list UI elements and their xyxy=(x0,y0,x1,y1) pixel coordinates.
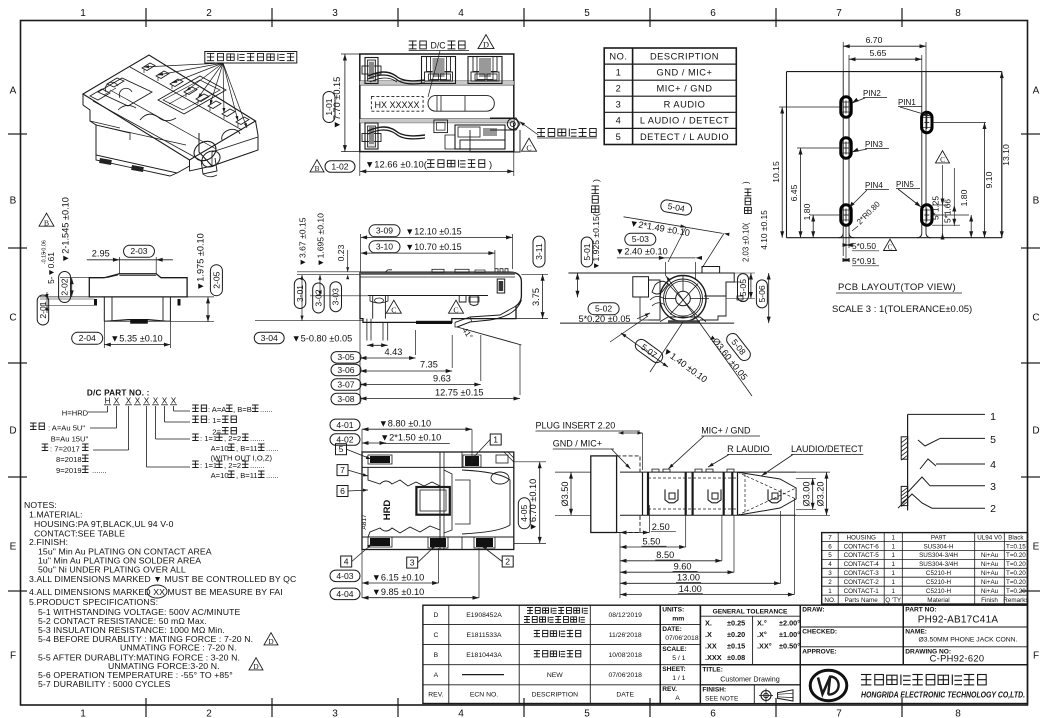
svg-text:6.70: 6.70 xyxy=(866,35,883,45)
svg-text:2: 2 xyxy=(206,8,212,19)
svg-text:1: 1 xyxy=(891,543,895,550)
svg-text:5*0.91: 5*0.91 xyxy=(852,256,876,266)
svg-text:.......: ....... xyxy=(250,461,265,470)
svg-text:T=0.20: T=0.20 xyxy=(1006,552,1026,559)
svg-text:9=2019: 9=2019 xyxy=(56,466,82,475)
svg-text:7: 7 xyxy=(828,534,832,541)
svg-text:11/26'2018: 11/26'2018 xyxy=(609,632,642,639)
svg-text:1: 1 xyxy=(891,534,895,541)
svg-text:, B=11: , B=11 xyxy=(236,444,258,453)
svg-text:2-04: 2-04 xyxy=(79,333,96,343)
svg-text:PIN3: PIN3 xyxy=(865,140,883,149)
svg-text:1: 1 xyxy=(990,411,996,423)
svg-text:▼5.35 ±0.10: ▼5.35 ±0.10 xyxy=(110,334,162,344)
svg-text:Black: Black xyxy=(1008,534,1024,541)
svg-text:5-03: 5-03 xyxy=(632,234,649,244)
svg-text:Parts Name: Parts Name xyxy=(845,597,879,604)
svg-text:NEW: NEW xyxy=(547,672,563,679)
svg-text:Ø3.20: Ø3.20 xyxy=(816,481,826,506)
svg-text:C5210-H: C5210-H xyxy=(926,579,952,586)
svg-text:2.95: 2.95 xyxy=(92,249,110,259)
svg-text:Ø3.00: Ø3.00 xyxy=(802,481,812,506)
svg-text:.X°: .X° xyxy=(757,630,767,639)
svg-text:Material: Material xyxy=(927,597,949,604)
svg-text:PIN2: PIN2 xyxy=(863,89,881,98)
svg-text:3.75: 3.75 xyxy=(531,288,541,306)
svg-text:NOTES:: NOTES: xyxy=(24,500,57,510)
svg-text:T=0.20: T=0.20 xyxy=(1006,588,1026,595)
svg-text:C: C xyxy=(9,313,16,324)
svg-text:3: 3 xyxy=(332,709,338,718)
svg-text:X: X xyxy=(114,396,120,405)
svg-text:DRAW:: DRAW: xyxy=(802,607,824,614)
svg-text:3: 3 xyxy=(332,8,338,19)
svg-text:4-01: 4-01 xyxy=(336,420,353,430)
svg-text:5: 5 xyxy=(990,434,996,446)
svg-text:X.: X. xyxy=(705,619,712,628)
svg-text:6: 6 xyxy=(828,543,832,550)
svg-text:X: X xyxy=(126,396,132,405)
svg-text:SUS304-3/4H: SUS304-3/4H xyxy=(919,561,958,568)
svg-text:5.50: 5.50 xyxy=(643,536,661,546)
svg-text:CHECKED:: CHECKED: xyxy=(802,629,837,636)
svg-text:08/12'2019: 08/12'2019 xyxy=(608,612,642,619)
svg-text:X: X xyxy=(162,396,168,405)
svg-text:CONTACT-6: CONTACT-6 xyxy=(844,543,880,550)
svg-text:C: C xyxy=(1032,313,1039,324)
svg-text:2: 2 xyxy=(206,709,212,718)
svg-text:3-04: 3-04 xyxy=(261,333,278,343)
svg-text:E: E xyxy=(10,542,17,553)
svg-text:H=HRD: H=HRD xyxy=(62,409,89,418)
svg-text:1.80: 1.80 xyxy=(959,189,969,206)
svg-text:C: C xyxy=(391,305,396,314)
svg-text:Remarks: Remarks xyxy=(1003,597,1028,604)
svg-text:5-02: 5-02 xyxy=(595,304,612,314)
svg-text:4.10 ±0.15: 4.10 ±0.15 xyxy=(759,210,769,250)
svg-text:NAME:: NAME: xyxy=(905,629,927,636)
svg-text:APPROVE:: APPROVE: xyxy=(802,648,836,655)
svg-text:5*0.50: 5*0.50 xyxy=(852,241,876,251)
svg-text:HONGRIDA ELECTRONIC TECHNOLOGY: HONGRIDA ELECTRONIC TECHNOLOGY CO,LTD. xyxy=(861,690,1025,700)
svg-text:Ø3.50: Ø3.50 xyxy=(560,481,570,506)
svg-text:A: A xyxy=(675,695,680,702)
svg-text:8: 8 xyxy=(955,709,961,718)
svg-text:5.65: 5.65 xyxy=(870,48,887,58)
svg-text:10.15: 10.15 xyxy=(771,161,781,183)
svg-text:H: H xyxy=(105,396,111,405)
svg-text:NO.: NO. xyxy=(824,597,835,604)
svg-text:SUS304-H: SUS304-H xyxy=(923,543,954,550)
svg-text:, 2=2: , 2=2 xyxy=(224,434,241,443)
svg-text:D/C: D/C xyxy=(431,41,447,51)
svg-text:1: 1 xyxy=(891,579,895,586)
svg-text:6: 6 xyxy=(710,709,716,718)
svg-text:±0.50°: ±0.50° xyxy=(779,642,800,651)
svg-text:GENERAL TOLERANCE: GENERAL TOLERANCE xyxy=(713,608,788,615)
svg-text:UNMATING FORCE : 7-20 N.: UNMATING FORCE : 7-20 N. xyxy=(120,643,237,653)
svg-text:SCALE 3 : 1(TOLERANCE±0.05): SCALE 3 : 1(TOLERANCE±0.05) xyxy=(832,304,972,315)
svg-text:X: X xyxy=(144,396,150,405)
svg-text:9.63: 9.63 xyxy=(433,374,451,384)
svg-text:GND / MIC+: GND / MIC+ xyxy=(553,439,602,449)
svg-text:5*1.66: 5*1.66 xyxy=(943,199,953,223)
svg-text:2-05: 2-05 xyxy=(211,271,221,288)
svg-text:E1810443A: E1810443A xyxy=(466,652,502,659)
svg-text:13.00: 13.00 xyxy=(677,573,700,583)
svg-text:MIC+ / GND: MIC+ / GND xyxy=(657,84,713,94)
svg-text:GND / MIC+: GND / MIC+ xyxy=(657,67,713,77)
svg-text:NO.: NO. xyxy=(609,51,627,61)
svg-text:UNITS:: UNITS: xyxy=(662,607,684,614)
svg-text:D: D xyxy=(433,612,438,619)
svg-text:▼2-1.545 ±0.10: ▼2-1.545 ±0.10 xyxy=(61,197,71,263)
svg-text:3-03: 3-03 xyxy=(331,288,341,305)
svg-text:▼5-0.80 ±0.05: ▼5-0.80 ±0.05 xyxy=(292,334,353,344)
svg-text:A=10: A=10 xyxy=(211,444,229,453)
svg-text:X: X xyxy=(171,396,177,405)
svg-text:1: 1 xyxy=(616,67,622,77)
svg-text:5*0.20 ±0.05: 5*0.20 ±0.05 xyxy=(579,314,631,324)
svg-text:1: 1 xyxy=(80,709,86,718)
svg-text:, B=B: , B=B xyxy=(233,405,252,414)
svg-text:......: ...... xyxy=(266,444,279,453)
svg-text:1.MATERIAL:: 1.MATERIAL: xyxy=(29,510,83,520)
svg-text:C5210-H: C5210-H xyxy=(926,570,952,577)
svg-text:HX XXXXX: HX XXXXX xyxy=(374,100,419,110)
svg-text:3-08: 3-08 xyxy=(337,394,354,404)
svg-text:Ni+Au: Ni+Au xyxy=(981,552,999,559)
svg-text:3: 3 xyxy=(990,481,996,493)
svg-text:5: 5 xyxy=(584,8,590,19)
svg-text:4: 4 xyxy=(828,561,832,568)
svg-text:5-▼0.61: 5-▼0.61 xyxy=(46,252,56,284)
svg-text:L AUDIO / DETECT: L AUDIO / DETECT xyxy=(640,116,729,126)
svg-text:TITLE:: TITLE: xyxy=(702,667,723,674)
svg-text:D: D xyxy=(9,426,16,437)
svg-text:2.03 ±0.10(: 2.03 ±0.10( xyxy=(742,222,751,262)
svg-text:6.45: 6.45 xyxy=(789,184,799,201)
svg-text:D: D xyxy=(1032,426,1039,437)
svg-text:D: D xyxy=(253,662,258,671)
svg-text:1: 1 xyxy=(891,561,895,568)
svg-text:1: 1 xyxy=(80,8,86,19)
svg-text:T=0.20: T=0.20 xyxy=(1006,579,1026,586)
svg-text:......: ...... xyxy=(260,405,273,414)
svg-text:B: B xyxy=(1033,196,1040,207)
svg-text:FINISH:: FINISH: xyxy=(702,687,726,694)
svg-text:07/06'2018: 07/06'2018 xyxy=(665,635,699,642)
svg-text:▼1.695 ±0.10: ▼1.695 ±0.10 xyxy=(316,213,326,267)
svg-text:A=10: A=10 xyxy=(211,471,229,480)
svg-text:3-06: 3-06 xyxy=(337,365,354,375)
svg-text:5*1.25: 5*1.25 xyxy=(931,196,941,220)
svg-text:3-01: 3-01 xyxy=(295,285,305,302)
svg-text:±2.00°: ±2.00° xyxy=(779,619,800,628)
svg-text:: 1=: : 1= xyxy=(208,416,221,425)
svg-text:CONTACT-1: CONTACT-1 xyxy=(844,588,880,595)
svg-text:C5210-H: C5210-H xyxy=(926,588,952,595)
svg-text:PCB LAYOUT(TOP VIEW): PCB LAYOUT(TOP VIEW) xyxy=(838,282,956,293)
svg-text:4-03: 4-03 xyxy=(336,571,353,581)
svg-text:.XX°: .XX° xyxy=(757,642,772,651)
svg-text:▼6.70 ±0.10: ▼6.70 ±0.10 xyxy=(528,479,538,531)
svg-text:▼2*1.50 ±0.10: ▼2*1.50 ±0.10 xyxy=(380,432,441,442)
svg-text:CONTACT-2: CONTACT-2 xyxy=(844,579,880,586)
svg-text:PH92-AB17C41A: PH92-AB17C41A xyxy=(918,615,999,626)
svg-text:F: F xyxy=(10,651,16,662)
svg-text:4: 4 xyxy=(458,709,464,718)
svg-text:: 7=2017: : 7=2017 xyxy=(50,445,80,454)
svg-text:PLUG INSERT 2.20: PLUG INSERT 2.20 xyxy=(536,421,616,431)
svg-text:CONTACT-5: CONTACT-5 xyxy=(844,552,880,559)
svg-text:8=2018: 8=2018 xyxy=(56,455,82,464)
svg-text:Q 'TY: Q 'TY xyxy=(885,597,902,604)
svg-text:PA9T: PA9T xyxy=(931,534,946,541)
svg-text:B: B xyxy=(10,196,17,207)
svg-text:ECN NO.: ECN NO. xyxy=(470,692,498,699)
svg-text:.......: ....... xyxy=(250,434,265,443)
svg-text:C: C xyxy=(888,245,893,252)
svg-text:▼1.975 ±0.10: ▼1.975 ±0.10 xyxy=(196,233,206,291)
svg-text:4-04: 4-04 xyxy=(336,589,353,599)
svg-text:REV.: REV. xyxy=(428,692,443,699)
svg-text:3: 3 xyxy=(828,570,832,577)
svg-text:▼8.80 ±0.10: ▼8.80 ±0.10 xyxy=(379,418,431,428)
svg-text:: 1=1: : 1=1 xyxy=(200,434,217,443)
svg-text:9.60: 9.60 xyxy=(674,562,692,572)
svg-text:4.ALL DIMENSIONS MARKED XX MUS: 4.ALL DIMENSIONS MARKED XX MUST BE MEASU… xyxy=(29,587,283,597)
svg-text:X.°: X.° xyxy=(757,619,767,628)
svg-text:8.50: 8.50 xyxy=(656,550,674,560)
svg-text:5: 5 xyxy=(616,132,622,142)
svg-text:3.ALL DIMENSIONS MARKED ▼ MUST: 3.ALL DIMENSIONS MARKED ▼ MUST BE CONTRO… xyxy=(29,574,296,584)
svg-text:2: 2 xyxy=(828,579,832,586)
svg-text:PIN5: PIN5 xyxy=(896,180,914,189)
svg-text:13.10: 13.10 xyxy=(1001,144,1011,166)
svg-text:Finish: Finish xyxy=(981,597,998,604)
svg-text:R LAUDIO: R LAUDIO xyxy=(727,444,770,454)
svg-text:Ø3.50MM PHONE JACK CONN.: Ø3.50MM PHONE JACK CONN. xyxy=(919,637,1018,644)
svg-text:LAUDIO/DETECT: LAUDIO/DETECT xyxy=(791,444,864,454)
svg-text:±0.20: ±0.20 xyxy=(727,630,745,639)
svg-text:X: X xyxy=(135,396,141,405)
svg-text:+0.06: +0.06 xyxy=(42,240,48,254)
svg-text:2-02: 2-02 xyxy=(59,278,69,295)
svg-text:1: 1 xyxy=(891,552,895,559)
svg-text:5-06: 5-06 xyxy=(757,285,767,302)
svg-text:E: E xyxy=(1033,542,1040,553)
svg-text:CONTACT-3: CONTACT-3 xyxy=(844,570,880,577)
svg-text:Customer Drawing: Customer Drawing xyxy=(720,675,780,684)
svg-text:7.35: 7.35 xyxy=(420,360,438,370)
svg-text:: 1=1: : 1=1 xyxy=(200,461,217,470)
svg-text:1: 1 xyxy=(891,588,895,595)
svg-text:HRD: HRD xyxy=(382,500,393,521)
svg-text:2: 2 xyxy=(990,503,996,515)
svg-text:C: C xyxy=(453,305,458,314)
svg-text:Ni+Au: Ni+Au xyxy=(981,570,999,577)
svg-text:3-07: 3-07 xyxy=(337,379,354,389)
svg-text:A: A xyxy=(1033,86,1040,97)
svg-text:3-11: 3-11 xyxy=(534,243,544,260)
svg-text:PIN4: PIN4 xyxy=(865,181,883,190)
svg-text:50u" Ni UNDER PLATING OVER ALL: 50u" Ni UNDER PLATING OVER ALL xyxy=(38,565,186,575)
svg-text:A817: A817 xyxy=(361,514,368,530)
svg-text:▼12.10 ±0.15: ▼12.10 ±0.15 xyxy=(405,226,461,236)
svg-text:, B=11: , B=11 xyxy=(236,471,258,480)
svg-text:B: B xyxy=(44,218,49,227)
svg-text:3: 3 xyxy=(616,100,622,110)
svg-text:3-09: 3-09 xyxy=(376,226,393,236)
svg-text:E1908452A: E1908452A xyxy=(466,612,502,619)
svg-text:4: 4 xyxy=(344,557,349,567)
svg-text:±1.00°: ±1.00° xyxy=(779,630,800,639)
svg-text:3: 3 xyxy=(410,558,415,568)
svg-text:: A=A: : A=A xyxy=(208,405,227,414)
svg-text:4-05: 4-05 xyxy=(519,504,529,521)
svg-text:5-01: 5-01 xyxy=(582,243,592,260)
svg-text:Ni+Au: Ni+Au xyxy=(981,579,999,586)
svg-text:DATE: DATE xyxy=(616,692,634,699)
svg-text:1: 1 xyxy=(828,588,832,595)
svg-text:2.50: 2.50 xyxy=(652,522,670,532)
svg-text:3-02: 3-02 xyxy=(313,289,323,306)
svg-text:2-03: 2-03 xyxy=(130,246,147,256)
svg-text:Ni+Au: Ni+Au xyxy=(981,588,999,595)
svg-text:▼12.66 ±0.10(: ▼12.66 ±0.10( xyxy=(365,159,428,170)
svg-text:▼3.67 ±0.15: ▼3.67 ±0.15 xyxy=(298,217,308,266)
svg-text:DESCRIPTION: DESCRIPTION xyxy=(650,51,719,61)
svg-text:C: C xyxy=(940,155,945,164)
svg-text:mm: mm xyxy=(672,616,684,623)
svg-text:.X: .X xyxy=(705,630,712,639)
svg-text:......: ...... xyxy=(266,471,279,480)
svg-text:A: A xyxy=(434,672,439,679)
svg-text:3-05: 3-05 xyxy=(337,352,354,362)
svg-text:D: D xyxy=(483,41,489,50)
svg-text:9.10: 9.10 xyxy=(984,171,994,188)
svg-text:): ) xyxy=(742,181,751,184)
svg-text:, 2=2: , 2=2 xyxy=(224,461,241,470)
svg-text:SUS304-3/4H: SUS304-3/4H xyxy=(919,552,958,559)
svg-text:.......: ....... xyxy=(92,466,107,475)
svg-text:±0.08: ±0.08 xyxy=(727,653,745,662)
svg-text:UL94 V0: UL94 V0 xyxy=(977,534,1002,541)
svg-text:6: 6 xyxy=(340,486,345,496)
svg-text:3-10: 3-10 xyxy=(376,242,393,252)
svg-text:DESCRIPTION: DESCRIPTION xyxy=(532,692,579,699)
svg-text:B: B xyxy=(434,652,439,659)
svg-text:▼2.40 ±0.10: ▼2.40 ±0.10 xyxy=(615,247,667,257)
svg-text:1-01: 1-01 xyxy=(324,98,334,115)
svg-text:C: C xyxy=(526,143,531,152)
svg-text:R AUDIO: R AUDIO xyxy=(664,100,706,110)
svg-text:B: B xyxy=(315,164,320,173)
svg-text:F: F xyxy=(1033,651,1039,662)
svg-text:▼10.70 ±0.15: ▼10.70 ±0.15 xyxy=(405,242,461,252)
svg-text:C-PH92-620: C-PH92-620 xyxy=(930,654,985,664)
svg-text:DETECT / L AUDIO: DETECT / L AUDIO xyxy=(640,132,729,142)
svg-text:MIC+ / GND: MIC+ / GND xyxy=(701,426,751,436)
svg-text:10/08'2018: 10/08'2018 xyxy=(608,652,642,659)
svg-text:: A=Au 5U": : A=Au 5U" xyxy=(48,424,85,433)
svg-text:4-02: 4-02 xyxy=(336,434,353,444)
svg-text:1 / 1: 1 / 1 xyxy=(672,675,685,682)
svg-text:B=Au 15U": B=Au 15U" xyxy=(51,435,89,444)
svg-text:8: 8 xyxy=(955,8,961,19)
svg-text:HOUSING: HOUSING xyxy=(847,534,876,541)
svg-text:1: 1 xyxy=(891,570,895,577)
svg-text:4: 4 xyxy=(616,116,622,126)
svg-text:C: C xyxy=(433,632,438,639)
svg-text:5-7 DURABILITY : 5000 CYCLES: 5-7 DURABILITY : 5000 CYCLES xyxy=(38,679,171,689)
svg-text:.XX: .XX xyxy=(705,642,717,651)
svg-text:DATE:: DATE: xyxy=(662,626,682,633)
svg-text:CONTACT-4: CONTACT-4 xyxy=(844,561,880,568)
svg-text:SHEET:: SHEET: xyxy=(662,666,685,673)
svg-text:0.23: 0.23 xyxy=(336,244,346,261)
svg-text:A: A xyxy=(10,86,17,97)
svg-text:PART NO:: PART NO: xyxy=(905,607,936,614)
svg-text:D: D xyxy=(268,637,273,646)
svg-text:7: 7 xyxy=(836,709,842,718)
svg-text:PIN1: PIN1 xyxy=(898,98,916,107)
svg-text:4: 4 xyxy=(990,459,996,471)
svg-text:7: 7 xyxy=(836,8,842,19)
svg-text:5: 5 xyxy=(584,709,590,718)
svg-text:): ) xyxy=(489,159,492,170)
svg-text:07/06'2018: 07/06'2018 xyxy=(608,672,642,679)
svg-text:5: 5 xyxy=(828,552,832,559)
svg-text:E1811533A: E1811533A xyxy=(466,632,501,639)
svg-text:1.80: 1.80 xyxy=(802,203,812,220)
svg-text:5 / 1: 5 / 1 xyxy=(672,655,685,662)
svg-text:5.PRODUCT SPECIFICATIONS:: 5.PRODUCT SPECIFICATIONS: xyxy=(29,597,158,607)
svg-text:7: 7 xyxy=(340,465,345,475)
svg-text:4.43: 4.43 xyxy=(385,347,403,357)
svg-text:5-05: 5-05 xyxy=(738,279,748,296)
svg-text:X: X xyxy=(153,396,159,405)
svg-text:SEE NOTE: SEE NOTE xyxy=(705,696,739,703)
svg-text:▼9.85 ±0.10: ▼9.85 ±0.10 xyxy=(372,587,424,597)
svg-text:SCALE:: SCALE: xyxy=(662,646,687,653)
svg-text:1-02: 1-02 xyxy=(331,161,348,171)
svg-text:±0.15: ±0.15 xyxy=(727,642,745,651)
svg-text:2: 2 xyxy=(505,557,510,567)
svg-text:±0.25: ±0.25 xyxy=(727,619,745,628)
svg-text:.XXX: .XXX xyxy=(705,653,722,662)
svg-text:Ni+Au: Ni+Au xyxy=(981,561,999,568)
svg-text:T=0.15: T=0.15 xyxy=(1006,543,1026,550)
svg-text:): ) xyxy=(591,179,601,182)
svg-text:4: 4 xyxy=(458,8,464,19)
svg-text:T=0.20: T=0.20 xyxy=(1006,570,1026,577)
svg-text:14.00: 14.00 xyxy=(679,584,702,594)
svg-text:2-01: 2-01 xyxy=(38,301,48,318)
svg-text:12.75 ±0.15: 12.75 ±0.15 xyxy=(435,388,483,398)
svg-text:2: 2 xyxy=(616,84,622,94)
svg-text:-0.15: -0.15 xyxy=(42,252,48,264)
svg-text:▼6.15 ±0.10: ▼6.15 ±0.10 xyxy=(372,572,424,582)
svg-text:1: 1 xyxy=(493,435,498,445)
svg-text:REV.: REV. xyxy=(662,686,677,693)
svg-text:T=0.20: T=0.20 xyxy=(1006,561,1026,568)
svg-text:6: 6 xyxy=(710,8,716,19)
